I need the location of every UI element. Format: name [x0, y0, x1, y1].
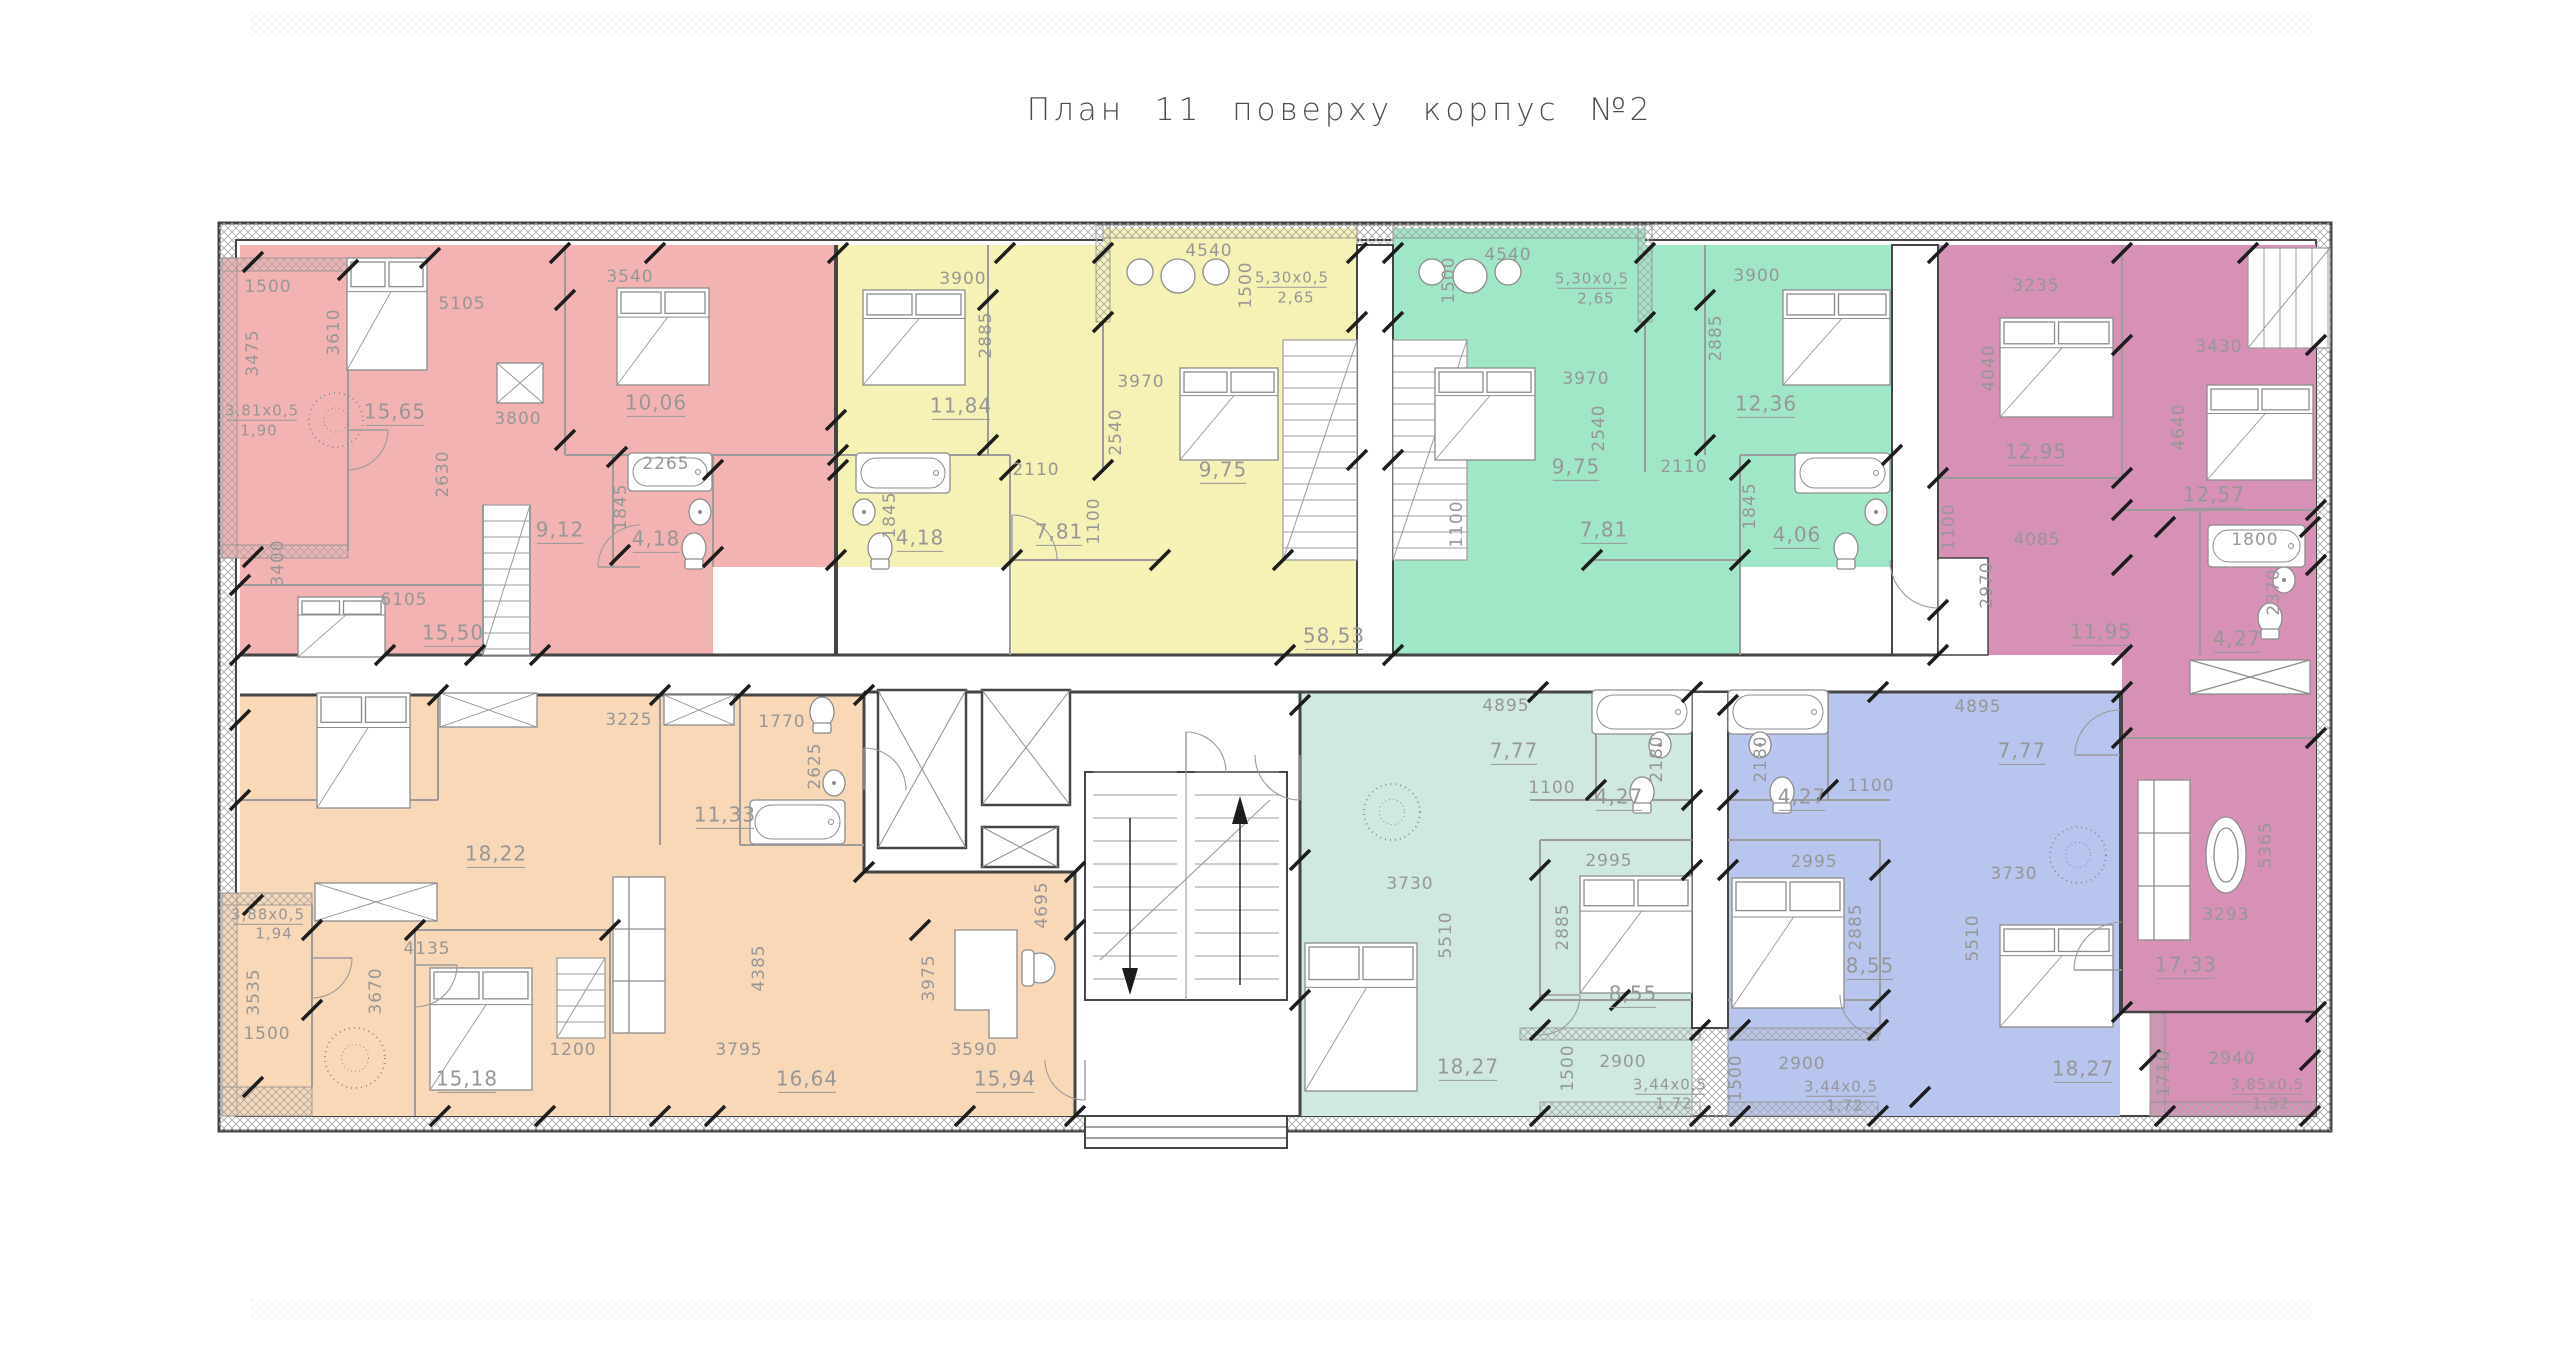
dimension-label: 3970	[1562, 369, 1609, 389]
main-staircase	[1085, 772, 1287, 1000]
dimension-label: 2900	[1778, 1054, 1825, 1074]
area-label: 9,75	[1199, 458, 1248, 482]
dimension-label: 1845	[611, 483, 631, 530]
dimension-label: 4640	[2169, 403, 2189, 450]
area-label: 12,95	[2005, 440, 2067, 464]
dimension-label: 3730	[1386, 874, 1433, 894]
dimension-label: 1500	[1558, 1044, 1578, 1091]
dimension-label: 1,72	[1655, 1095, 1692, 1113]
dimension-label: 1100	[1939, 503, 1959, 550]
area-label: 12,36	[1735, 392, 1797, 416]
dimension-label: 1100	[1528, 778, 1575, 798]
dimension-label: 1,72	[1826, 1097, 1863, 1115]
dimension-label: 4085	[2013, 530, 2060, 550]
dimension-label: 1,94	[255, 925, 292, 943]
dimension-label: 3970	[1117, 372, 1164, 392]
area-label: 3,44x0,5	[1804, 1078, 1878, 1096]
area-label: 16,64	[776, 1067, 838, 1091]
entrance-porch	[1085, 1116, 1287, 1148]
dimension-label: 2110	[1660, 457, 1707, 477]
dimension-label: 2180	[1751, 735, 1771, 782]
dimension-label: 2885	[1706, 314, 1726, 361]
area-label: 7,77	[1998, 739, 2047, 763]
dimension-label: 3225	[605, 710, 652, 730]
area-label: 15,18	[436, 1067, 498, 1091]
dimension-label: 2885	[1553, 903, 1573, 950]
dimension-label: 3670	[366, 967, 386, 1014]
dimension-label: 1845	[1740, 482, 1760, 529]
dimension-label: 4895	[1482, 696, 1529, 716]
dimension-label: 5510	[1963, 914, 1983, 961]
dimension-label: 2,65	[1577, 290, 1614, 308]
dimension-label: 2540	[1106, 408, 1126, 455]
area-label: 18,22	[465, 842, 527, 866]
area-label: 4,27	[1595, 785, 1644, 809]
area-label: 4,27	[1778, 785, 1827, 809]
area-label: 4,06	[1773, 523, 1822, 547]
dimension-label: 2885	[976, 311, 996, 358]
dimension-label: 1845	[880, 491, 900, 538]
area-label: 18,27	[2052, 1057, 2114, 1081]
dimension-label: 3293	[2202, 905, 2249, 925]
area-label: 15,94	[974, 1067, 1036, 1091]
dimension-label: 4540	[1484, 245, 1531, 265]
dimension-label: 1100	[1084, 497, 1104, 544]
dimension-label: 3900	[939, 269, 986, 289]
dimension-label: 1,90	[240, 422, 277, 440]
dimension-label: 4385	[749, 944, 769, 991]
area-label: 10,06	[625, 391, 687, 415]
dimension-label: 2885	[1846, 903, 1866, 950]
dimension-label: 5105	[438, 294, 485, 314]
dimension-label: 1200	[549, 1040, 596, 1060]
dimension-label: 3400	[268, 539, 288, 586]
area-label: 4,18	[632, 527, 681, 551]
dimension-label: 3475	[243, 329, 263, 376]
dimension-label: 3235	[2012, 276, 2059, 296]
floor-plan-drawing: 150034753,81x0,51,9036105105354015,65380…	[0, 0, 2560, 1350]
dimension-label: 2180	[1647, 735, 1667, 782]
faint-top-dimension-row	[250, 12, 2312, 36]
dimension-label: 1710	[2154, 1049, 2174, 1096]
dimension-label: 2625	[805, 742, 825, 789]
dimension-label: 1100	[1847, 776, 1894, 796]
area-label: 58,53	[1303, 624, 1365, 648]
area-label: 3,88x0,5	[231, 906, 305, 924]
area-label: 18,27	[1437, 1055, 1499, 1079]
dimension-label: 2540	[1589, 404, 1609, 451]
area-label: 9,12	[536, 518, 585, 542]
area-label: 11,33	[694, 803, 756, 827]
dimension-label: 2,65	[1277, 289, 1314, 307]
dimension-label: 4135	[403, 939, 450, 959]
dimension-label: 3900	[1733, 266, 1780, 286]
dimension-label: 2995	[1790, 852, 1837, 872]
dimension-label: 3730	[1990, 864, 2037, 884]
dimension-label: 1,92	[2252, 1095, 2289, 1113]
area-label: 15,65	[364, 400, 426, 424]
dimension-label: 3800	[494, 409, 541, 429]
area-label: 15,50	[422, 621, 484, 645]
area-label: 12,57	[2183, 483, 2245, 507]
dimension-label: 5365	[2256, 821, 2276, 868]
faint-bottom-dimension-row	[250, 1298, 2312, 1320]
dimension-label: 1500	[243, 1024, 290, 1044]
area-label: 3,44x0,5	[1633, 1076, 1707, 1094]
dimension-label: 2900	[1599, 1052, 1646, 1072]
dimension-label: 3430	[2195, 337, 2242, 357]
area-label: 4,27	[2213, 627, 2262, 651]
dimension-label: 1100	[1447, 500, 1467, 547]
dimension-label: 4895	[1954, 697, 2001, 717]
area-label: 7,81	[1580, 518, 1629, 542]
dimension-label: 1500	[1439, 256, 1459, 303]
dimension-label: 6105	[380, 590, 427, 610]
dimension-label: 3535	[244, 968, 264, 1015]
area-label: 11,95	[2070, 620, 2132, 644]
dimension-label: 2940	[2208, 1049, 2255, 1069]
area-label: 3,81x0,5	[225, 402, 299, 420]
dimension-label: 1800	[2231, 530, 2278, 550]
dimension-label: 4040	[1979, 344, 1999, 391]
dimension-label: 1500	[1726, 1054, 1746, 1101]
area-label: 17,33	[2155, 953, 2217, 977]
dimension-label: 1500	[1236, 261, 1256, 308]
dimension-label: 2265	[642, 454, 689, 474]
plan-title: План 11 поверху корпус №2	[1020, 92, 1660, 128]
area-label: 3,85x0,5	[2230, 1076, 2304, 1094]
dimension-label: 1500	[244, 277, 291, 297]
area-label: 9,75	[1552, 455, 1601, 479]
dimension-label: 2370	[2264, 568, 2284, 615]
dimension-label: 3975	[919, 954, 939, 1001]
dimension-label: 2970	[1977, 561, 1997, 608]
area-label: 7,81	[1035, 520, 1084, 544]
dimension-label: 3590	[950, 1040, 997, 1060]
area-label: 8,55	[1846, 954, 1895, 978]
area-label: 8,55	[1609, 982, 1658, 1006]
area-label: 11,84	[930, 394, 992, 418]
dimension-label: 1770	[758, 712, 805, 732]
floor-plan-canvas: План 11 поверху корпус №2	[0, 0, 2560, 1350]
area-label: 7,77	[1490, 739, 1539, 763]
dimension-label: 4540	[1185, 241, 1232, 261]
dimension-label: 4695	[1032, 881, 1052, 928]
dimension-label: 3610	[324, 308, 344, 355]
area-label: 5,30x0,5	[1555, 270, 1629, 288]
dimension-label: 2995	[1585, 851, 1632, 871]
area-label: 4,18	[896, 526, 945, 550]
dimension-label: 2630	[433, 450, 453, 497]
dimension-label: 3795	[715, 1040, 762, 1060]
area-label: 5,30x0,5	[1255, 269, 1329, 287]
dimension-label: 2110	[1012, 460, 1059, 480]
dimension-label: 5510	[1436, 911, 1456, 958]
dimension-label: 3540	[606, 267, 653, 287]
